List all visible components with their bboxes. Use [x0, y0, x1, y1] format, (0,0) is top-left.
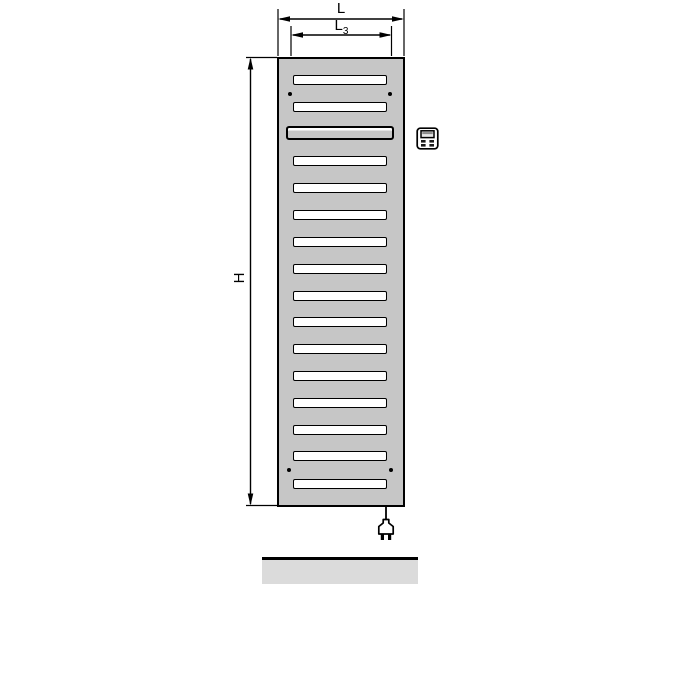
floor-surface [262, 557, 418, 584]
radiator-slot [293, 102, 387, 112]
radiator-body [277, 57, 405, 507]
dim-label-height: H [226, 264, 254, 292]
radiator-slot [293, 291, 387, 301]
power-plug-icon [379, 507, 393, 540]
dim-label-connection-width-sub: 3 [343, 26, 349, 37]
radiator-slot [293, 156, 387, 166]
screw-hole [288, 92, 292, 96]
radiator-slot [293, 317, 387, 327]
dim-label-width: L [278, 2, 404, 16]
screw-hole [388, 92, 392, 96]
radiator-slot [293, 344, 387, 354]
screw-hole [389, 468, 393, 472]
control-panel-icon [416, 127, 439, 150]
radiator-slot [293, 237, 387, 247]
radiator-slot [293, 425, 387, 435]
radiator-slot [293, 183, 387, 193]
radiator-slot [293, 75, 387, 85]
technical-drawing-canvas: L L3 H [0, 0, 700, 700]
radiator-slot [293, 398, 387, 408]
dim-label-connection-width-base: L [335, 17, 343, 34]
radiator-slot [293, 210, 387, 220]
dim-label-connection-width: L3 [291, 19, 392, 33]
radiator-slot [293, 371, 387, 381]
screw-hole [287, 468, 291, 472]
radiator-slot-wide [286, 126, 394, 140]
radiator-slot [293, 264, 387, 274]
radiator-slot [293, 479, 387, 489]
radiator-slot [293, 451, 387, 461]
